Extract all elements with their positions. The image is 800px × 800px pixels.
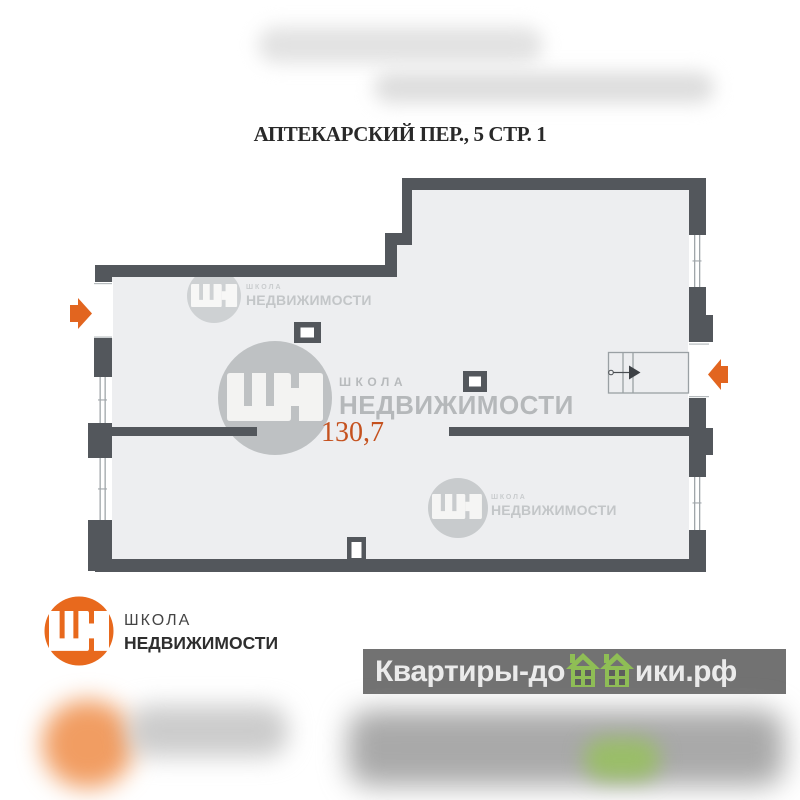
entry-arrow-left-icon [70, 298, 92, 329]
shn-logo-icon [49, 611, 109, 651]
watermark-text-top: ШКОЛА НЕДВИЖИМОСТИ [246, 284, 372, 308]
watermark-text-lower: ШКОЛА НЕДВИЖИМОСТИ [491, 494, 617, 518]
floor-plan-page: АПТЕКАРСКИЙ ПЕР., 5 СТР. 1 [0, 0, 800, 800]
logo-school-label: ШКОЛА [124, 612, 278, 630]
watermark-text-center: ШКОЛА НЕДВИЖИМОСТИ [339, 375, 574, 421]
site-watermark-band: Квартиры-до ики.рф [363, 649, 786, 694]
watermark-school-label: ШКОЛА [491, 494, 617, 501]
shn-logo-icon [227, 373, 323, 421]
blur-artifact [42, 700, 134, 788]
entry-arrow-right-icon [708, 359, 728, 390]
site-name-prefix: Квартиры-до [375, 655, 565, 689]
green-houses-icon [566, 651, 634, 687]
door-opening-left [93, 282, 113, 338]
watermark-realty-label: НЕДВИЖИМОСТИ [491, 502, 617, 518]
interior-wall-left [112, 427, 257, 436]
company-logo-text: ШКОЛА НЕДВИЖИМОСТИ [124, 612, 278, 654]
watermark-school-label: ШКОЛА [339, 375, 574, 389]
site-name-suffix: ики.рф [635, 655, 737, 689]
window-left-1 [95, 377, 112, 423]
interior-wall-right [449, 427, 689, 436]
wall-niche [347, 537, 366, 562]
watermark-realty-label: НЕДВИЖИМОСТИ [246, 292, 372, 308]
door-opening-right [688, 342, 710, 398]
shn-logo-icon [432, 494, 482, 519]
company-logo [40, 592, 120, 672]
window-left-2 [95, 458, 112, 520]
shn-logo-icon [191, 284, 237, 307]
watermark-school-label: ШКОЛА [246, 284, 372, 291]
window-right-1 [689, 235, 706, 287]
apartment-area-value: 130,7 [321, 417, 384, 449]
logo-realty-label: НЕДВИЖИМОСТИ [124, 633, 278, 654]
column-shaft-1 [294, 322, 321, 343]
window-right-2 [689, 477, 706, 530]
